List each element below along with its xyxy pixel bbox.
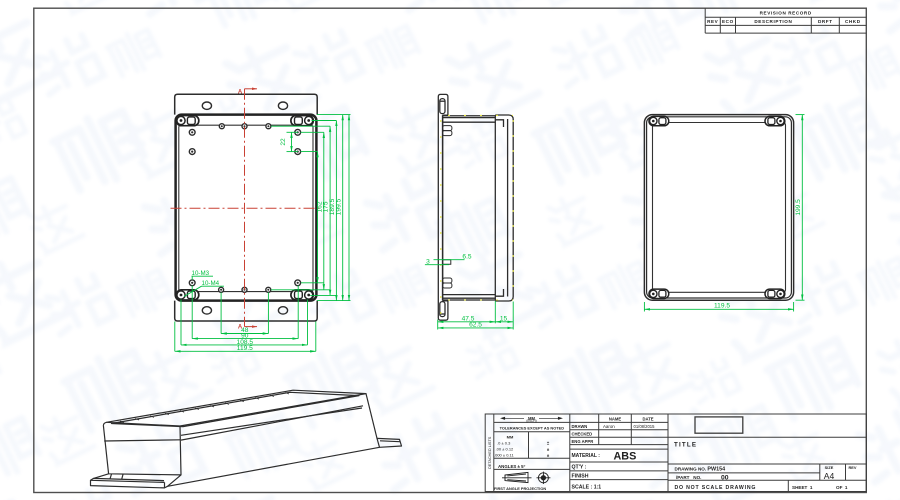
svg-text:REV: REV	[707, 19, 719, 24]
svg-text:01/08/2015: 01/08/2015	[634, 424, 656, 429]
svg-text:ECO: ECO	[722, 19, 734, 24]
svg-text:ABS: ABS	[614, 450, 637, 462]
svg-text:62.5: 62.5	[469, 322, 482, 329]
svg-text:ANGLES ± 5°: ANGLES ± 5°	[498, 464, 526, 469]
svg-text:FINISH: FINISH	[572, 473, 589, 479]
svg-text:TITLE: TITLE	[674, 441, 697, 448]
svg-text:CHKD: CHKD	[845, 19, 861, 24]
svg-text:.00 ± 0.12: .00 ± 0.12	[496, 446, 515, 451]
svg-text:Aaron: Aaron	[603, 424, 615, 429]
svg-text:SCALE : 1:1: SCALE : 1:1	[572, 484, 602, 490]
svg-text:.000 ± 0.11: .000 ± 0.11	[494, 452, 514, 457]
svg-text:A: A	[238, 89, 243, 95]
svg-text:3: 3	[426, 259, 430, 266]
svg-text:119.5: 119.5	[237, 345, 253, 352]
svg-text:.0 ± 0.3: .0 ± 0.3	[497, 440, 511, 445]
svg-text:A4: A4	[824, 471, 835, 481]
svg-text:/PART NO.: /PART NO.	[676, 475, 701, 480]
svg-text:QT'Y :: QT'Y :	[572, 465, 587, 471]
svg-text:DETACHED LISTS: DETACHED LISTS	[488, 436, 492, 469]
svg-text:REV: REV	[849, 465, 857, 470]
svg-text:199.5: 199.5	[795, 199, 802, 216]
svg-text:OF 1: OF 1	[836, 485, 848, 490]
svg-text:TOLERANCES EXCEPT AS NOTED: TOLERANCES EXCEPT AS NOTED	[500, 425, 565, 430]
svg-text:DRAWN: DRAWN	[572, 424, 588, 429]
svg-text:CHECKED: CHECKED	[572, 431, 593, 436]
svg-text:199.5: 199.5	[336, 198, 343, 215]
svg-text:DATE: DATE	[642, 416, 653, 421]
svg-text:MM: MM	[507, 434, 514, 439]
svg-text:ENG APPR: ENG APPR	[572, 439, 594, 444]
svg-text:MATERIAL :: MATERIAL :	[572, 453, 601, 459]
svg-text:(INCH): (INCH)	[526, 419, 537, 423]
svg-text:FIRST ANGLE PROJECTION: FIRST ANGLE PROJECTION	[494, 486, 546, 491]
svg-text:REVISION RECORD: REVISION RECORD	[760, 10, 812, 15]
svg-text:NAME: NAME	[609, 416, 622, 421]
svg-text:119.5: 119.5	[714, 302, 730, 309]
svg-text:SIZE: SIZE	[825, 465, 834, 470]
svg-text:DESCRIPTION: DESCRIPTION	[754, 19, 792, 24]
svg-text:00: 00	[721, 475, 729, 482]
svg-text:SHEET 1: SHEET 1	[792, 485, 813, 490]
svg-text:DRFT: DRFT	[818, 19, 833, 24]
svg-text:6.5: 6.5	[462, 254, 471, 261]
svg-text:DO NOT SCALE DRAWING: DO NOT SCALE DRAWING	[675, 485, 757, 491]
svg-text:15: 15	[500, 315, 508, 322]
svg-text:22: 22	[280, 138, 287, 146]
